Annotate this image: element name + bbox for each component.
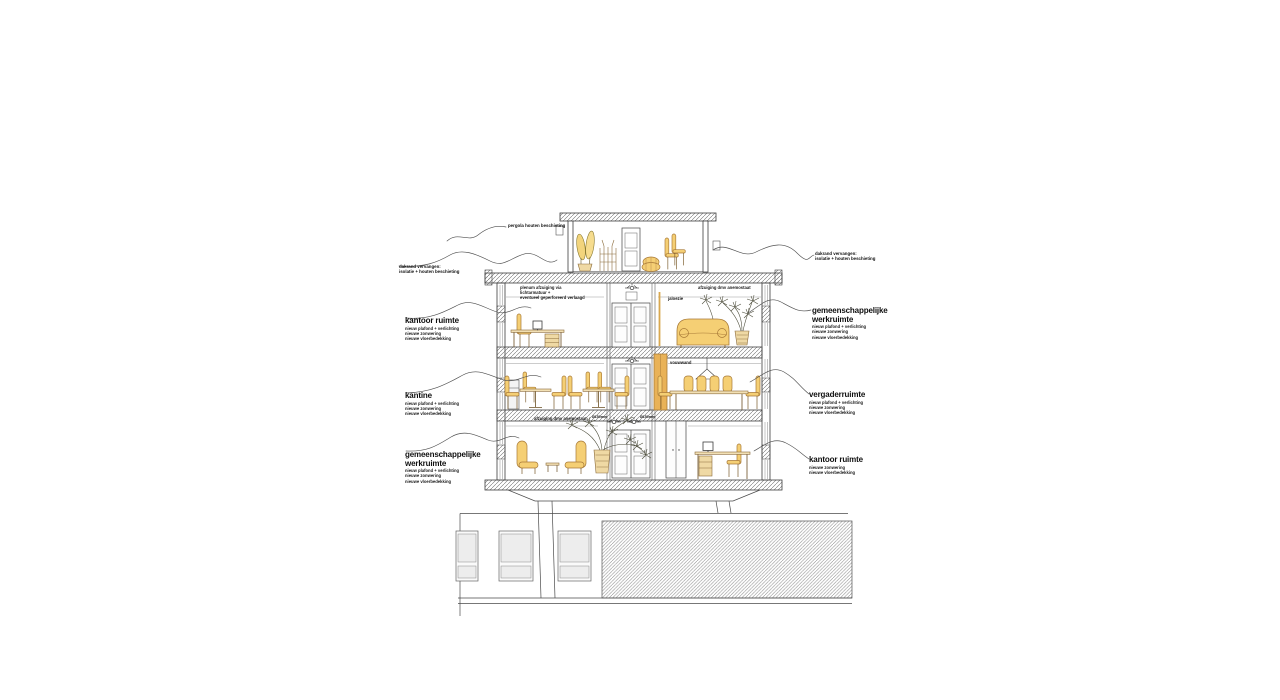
roof-slab xyxy=(485,273,782,283)
annotation-exhaust-upper: afzuiging dmv anemostaat xyxy=(698,286,751,291)
building-section-sketch xyxy=(0,0,1280,700)
penthouse-stacked-chairs xyxy=(665,234,685,269)
label-kantoor-left: kantoor ruimte nieuw plafond + verlichti… xyxy=(405,317,475,341)
label-line: nieuwe vloerbedekking xyxy=(812,335,890,340)
penthouse xyxy=(556,213,720,272)
label-line: nieuwe vloerbedekking xyxy=(405,336,475,341)
label-kantoor-right: kantoor ruimte nieuwe zonwering nieuwe v… xyxy=(809,456,881,475)
penthouse-wall-left xyxy=(568,221,573,272)
support-trapezoid xyxy=(508,490,760,501)
label-line: nieuwe vloerbedekking xyxy=(405,479,483,484)
leader-lines xyxy=(399,226,814,459)
annotation-plenum: plenum afzuiging via lichtarmatuur + eve… xyxy=(520,286,586,301)
leader-dakrand-right xyxy=(713,245,814,259)
label-title: gemeenschappelijke werkruimte xyxy=(812,307,890,324)
label-title: vergaderruimte xyxy=(809,391,881,400)
canteen-table-2 xyxy=(583,389,614,391)
side-table xyxy=(546,463,559,465)
penthouse-pouf xyxy=(642,257,660,272)
transom-vent xyxy=(626,292,637,300)
fan-icon xyxy=(625,283,639,290)
annotation-vouwwand: vouwwand xyxy=(670,361,691,366)
canteen-table-1 xyxy=(520,389,551,391)
annotation-line: Ø150mm xyxy=(640,415,655,420)
label-pergola: pergola houten beschieting xyxy=(508,223,565,228)
sofa xyxy=(677,319,729,345)
office-room-upper-left xyxy=(511,314,564,347)
computer xyxy=(703,442,713,451)
annotation-duct-diameter-right: Ø150mm xyxy=(640,415,655,420)
lower-window-2 xyxy=(499,531,533,581)
penthouse-roof xyxy=(560,213,716,221)
label-werkruimte-right: gemeenschappelijke werkruimte nieuw plaf… xyxy=(812,307,890,340)
plant-basket xyxy=(594,450,610,473)
penthouse-plants xyxy=(575,231,595,271)
office-room-ground-right xyxy=(666,421,750,479)
annotation-exhaust-lower: afzuiging dmv anemostaat xyxy=(534,417,587,422)
label-kantine: kantine nieuw plafond + verlichting nieu… xyxy=(405,392,475,416)
core-door-top-floor xyxy=(612,292,650,347)
core-door-ground-floor xyxy=(612,430,650,478)
drawer-unit xyxy=(699,456,712,476)
drawer-unit xyxy=(545,334,559,347)
monitor xyxy=(533,321,542,329)
label-title: pergola houten beschieting xyxy=(508,223,565,228)
support-column-right xyxy=(716,501,731,513)
label-dakrand-left: dakrand vervangen: isolatie + houten bes… xyxy=(399,264,459,275)
annotation-jaloezie: jaloezie xyxy=(668,297,683,302)
annotation-line: vouwwand xyxy=(670,361,691,366)
lower-existing-building xyxy=(456,490,852,616)
lower-window-3 xyxy=(558,531,591,581)
conference-table xyxy=(670,391,748,394)
annotation-line: jaloezie xyxy=(668,297,683,302)
core-door-mid-floor xyxy=(612,364,650,410)
label-title: kantoor ruimte xyxy=(405,317,475,326)
label-werkruimte-left: gemeenschappelijke werkruimte nieuw plaf… xyxy=(405,451,483,484)
ground-slab xyxy=(485,480,782,490)
lower-window-1 xyxy=(456,531,478,581)
label-dakrand-right: dakrand vervangen: isolatie + houten bes… xyxy=(815,251,875,262)
label-line: nieuwe vloerbedekking xyxy=(809,470,881,475)
desk xyxy=(695,452,750,454)
label-title: kantine xyxy=(405,392,475,401)
penthouse-door xyxy=(622,228,640,271)
label-vergaderruimte: vergaderruimte nieuw plafond + verlichti… xyxy=(809,391,881,415)
label-title: gemeenschappelijke werkruimte xyxy=(405,451,483,468)
hatched-plinth-block xyxy=(602,521,852,598)
annotation-line: Ø150mm xyxy=(592,415,607,420)
penthouse-trellis xyxy=(600,240,616,271)
roof-edge-cap-left xyxy=(485,270,492,285)
label-line: nieuwe vloerbedekking xyxy=(405,411,475,416)
label-title: kantoor ruimte xyxy=(809,456,881,465)
roof-edge-cap-right xyxy=(775,270,782,285)
label-line: isolatie + houten beschieting xyxy=(815,256,875,261)
support-column-left xyxy=(538,501,555,598)
annotation-line: afzuiging dmv anemostaat xyxy=(698,286,751,291)
floor-slab-upper xyxy=(497,347,762,358)
leader-pergola xyxy=(447,226,506,241)
label-line: isolatie + houten beschieting xyxy=(399,269,459,274)
facade-bracket-right xyxy=(713,241,720,250)
annotation-line: eventueel geperforeerd verlaagd xyxy=(520,296,586,301)
annotation-line: afzuiging dmv anemostaat xyxy=(534,417,587,422)
penthouse-wall-right xyxy=(703,221,708,272)
label-line: nieuwe vloerbedekking xyxy=(809,410,881,415)
annotation-duct-diameter-left: Ø150mm xyxy=(592,415,607,420)
leader-werkruimte-right xyxy=(748,300,811,313)
section-drawing-page: dakrand vervangen: isolatie + houten bes… xyxy=(0,0,1280,700)
